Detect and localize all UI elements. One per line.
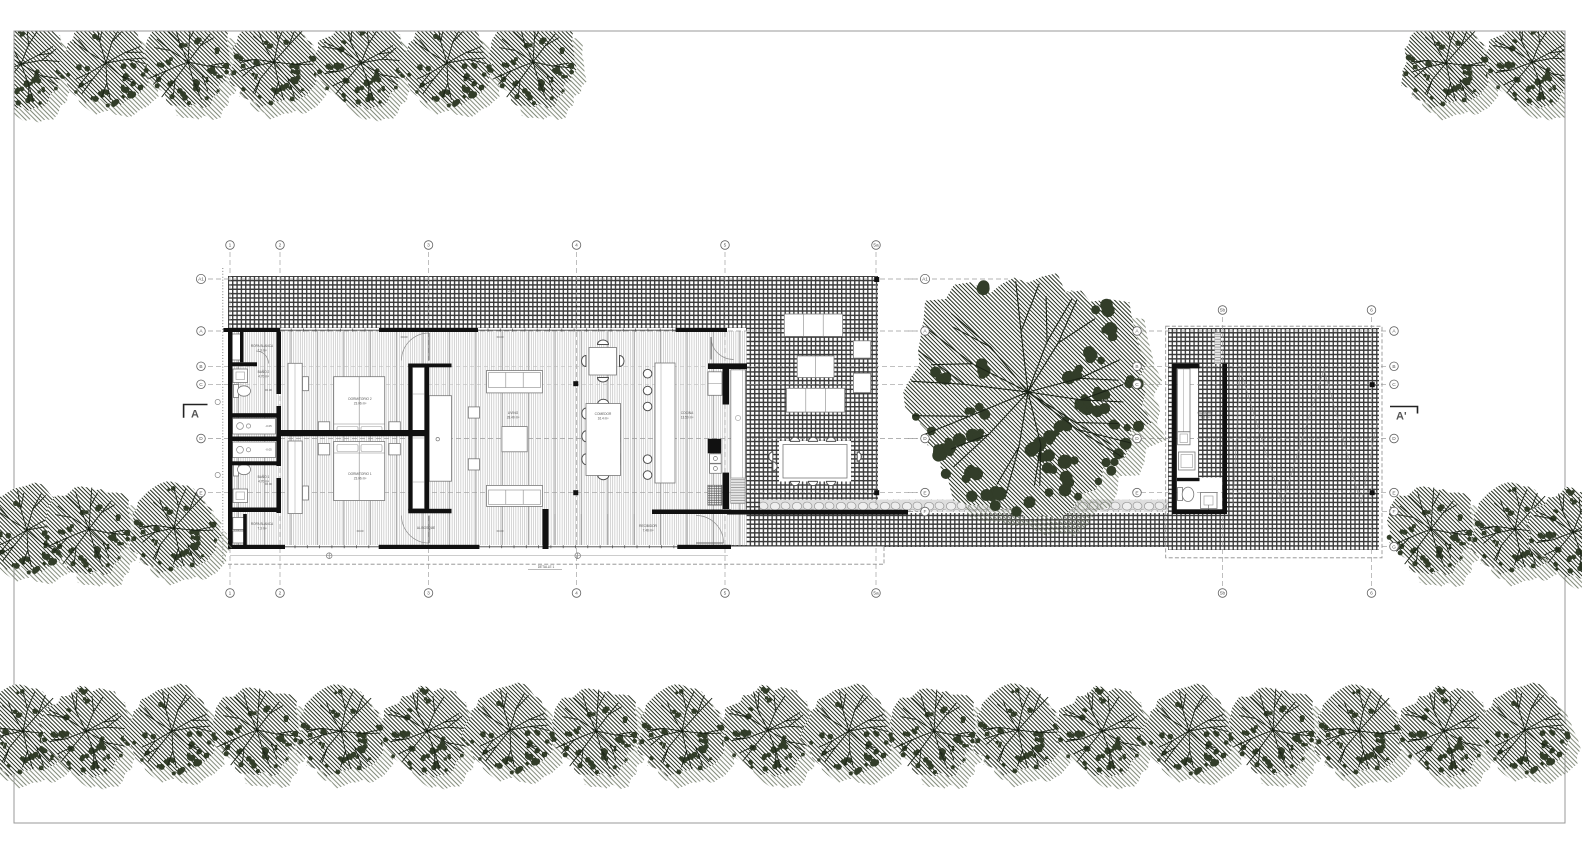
svg-text:13.50 m²: 13.50 m² [681,415,694,419]
svg-text:COCINA: COCINA [681,411,694,415]
svg-text:1: 1 [229,591,232,597]
svg-text:C: C [199,382,203,388]
svg-text:F: F [1393,509,1396,515]
svg-text:6: 6 [1370,591,1373,597]
svg-text:+0.15: +0.15 [1261,527,1269,531]
svg-text:7.3 m²: 7.3 m² [257,526,266,530]
svg-text:9.8 m²: 9.8 m² [1200,415,1209,419]
svg-text:B: B [1392,364,1395,370]
svg-text:23.06 m²: 23.06 m² [354,401,367,405]
svg-text:±0.00: ±0.00 [401,335,408,339]
svg-text:2: 2 [279,243,282,249]
svg-text:F: F [924,509,927,515]
svg-text:C: C [1135,382,1139,388]
svg-text:3: 3 [427,243,430,249]
svg-text:3: 3 [427,591,430,597]
svg-text:28.40 m²: 28.40 m² [507,415,520,419]
svg-text:23.06 m²: 23.06 m² [354,476,367,480]
svg-text:±0.00: ±0.00 [497,335,504,339]
svg-text:1: 1 [229,243,232,249]
svg-text:16.4 m²: 16.4 m² [598,416,609,420]
svg-text:6: 6 [1370,308,1373,314]
svg-text:±0.00: ±0.00 [497,529,504,533]
svg-text:DORMITORIO 1: DORMITORIO 1 [348,472,372,476]
svg-text:RECIBIDOR: RECIBIDOR [639,524,657,528]
svg-text:AL BOSQUE: AL BOSQUE [417,526,435,530]
svg-text:+2.05: +2.05 [506,289,514,293]
svg-text:COMEDOR: COMEDOR [595,412,612,416]
svg-text:D: D [1135,436,1139,442]
svg-text:DETALLE 1: DETALLE 1 [538,565,555,569]
svg-text:B: B [199,364,202,370]
svg-text:4: 4 [575,591,578,597]
svg-text:-0.05: -0.05 [265,424,272,428]
svg-text:5a: 5a [873,591,879,597]
svg-text:4.70 m²: 4.70 m² [258,374,269,378]
svg-text:E: E [923,490,926,496]
svg-text:A: A [191,409,199,421]
svg-text:5b: 5b [1220,591,1226,597]
svg-text:D: D [1392,436,1396,442]
svg-text:E: E [1392,490,1395,496]
svg-text:A1: A1 [198,277,204,283]
svg-text:G: G [1392,544,1396,550]
svg-text:C: C [1392,382,1396,388]
svg-text:LIVING: LIVING [508,411,519,415]
svg-text:5: 5 [724,243,727,249]
svg-text:D: D [923,436,927,442]
svg-text:5b: 5b [1220,308,1226,314]
svg-text:±0.00: ±0.00 [265,482,272,486]
svg-text:4: 4 [575,243,578,249]
svg-text:ROPA BLANCA: ROPA BLANCA [251,344,274,348]
svg-text:±0.00: ±0.00 [357,529,364,533]
svg-text:D: D [199,436,203,442]
svg-text:E: E [1135,490,1138,496]
svg-text:DORMITORIO 2: DORMITORIO 2 [348,397,372,401]
svg-text:E: E [199,490,202,496]
svg-text:7.3 m²: 7.3 m² [257,348,266,352]
svg-text:A': A' [1396,411,1407,423]
svg-text:ROPA BLANCA: ROPA BLANCA [251,522,274,526]
svg-text:BAÑO 1: BAÑO 1 [258,474,270,479]
svg-text:BAÑO 2: BAÑO 2 [258,369,270,374]
svg-text:QUINCHO: QUINCHO [1197,411,1213,415]
svg-text:-0.05: -0.05 [265,448,272,452]
svg-text:A1: A1 [922,277,928,283]
svg-text:±0.00: ±0.00 [265,388,272,392]
svg-text:5a: 5a [873,243,879,249]
svg-text:7.48 m²: 7.48 m² [643,528,654,532]
svg-text:B: B [1135,364,1138,370]
svg-text:2: 2 [279,591,282,597]
svg-text:5: 5 [724,591,727,597]
